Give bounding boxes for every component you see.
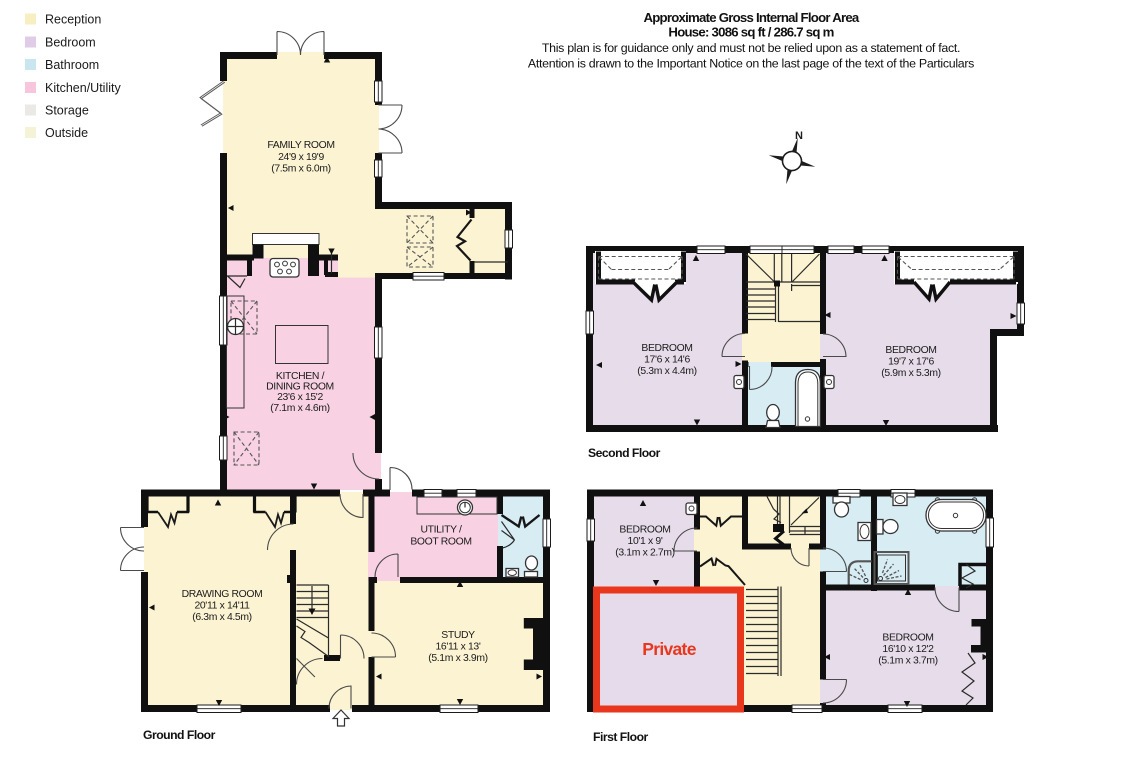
svg-text:(5.1m x 3.7m): (5.1m x 3.7m) [878, 656, 938, 667]
svg-text:FAMILY ROOM: FAMILY ROOM [267, 140, 334, 151]
svg-text:Ground Floor: Ground Floor [143, 728, 216, 742]
svg-text:DRAWING ROOM: DRAWING ROOM [182, 589, 263, 600]
svg-text:Private: Private [642, 639, 696, 659]
svg-text:House: 3086 sq ft / 286.7 sq m: House: 3086 sq ft / 286.7 sq m [668, 25, 833, 40]
svg-text:KITCHEN /: KITCHEN / [276, 371, 325, 382]
svg-text:N: N [795, 130, 803, 142]
svg-text:BOOT ROOM: BOOT ROOM [410, 537, 471, 548]
svg-text:(6.3m x 4.5m): (6.3m x 4.5m) [192, 612, 252, 623]
svg-text:23'6 x 15'2: 23'6 x 15'2 [277, 392, 323, 403]
svg-text:20'11 x 14'11: 20'11 x 14'11 [194, 601, 250, 612]
svg-text:Bedroom: Bedroom [45, 36, 96, 50]
svg-text:Approximate Gross Internal Flo: Approximate Gross Internal Floor Area [643, 10, 859, 25]
svg-text:Reception: Reception [45, 13, 101, 27]
svg-text:UTILITY /: UTILITY / [420, 525, 462, 536]
svg-text:DINING ROOM: DINING ROOM [266, 382, 334, 393]
svg-text:Kitchen/Utility: Kitchen/Utility [45, 81, 121, 95]
svg-text:(5.3m x 4.4m): (5.3m x 4.4m) [637, 366, 697, 377]
svg-text:17'6 x 14'6: 17'6 x 14'6 [644, 355, 690, 366]
svg-text:This plan is for guidance only: This plan is for guidance only and must … [542, 41, 960, 55]
svg-text:Attention is drawn to the Impo: Attention is drawn to the Important Noti… [528, 57, 974, 71]
svg-text:BEDROOM: BEDROOM [885, 345, 936, 356]
svg-text:BEDROOM: BEDROOM [619, 525, 670, 536]
svg-text:First Floor: First Floor [593, 730, 649, 744]
svg-text:Storage: Storage [45, 104, 89, 118]
svg-text:Outside: Outside [45, 126, 88, 140]
svg-text:10'1 x 9': 10'1 x 9' [628, 536, 663, 547]
svg-text:Second Floor: Second Floor [588, 446, 661, 460]
svg-text:(3.1m x 2.7m): (3.1m x 2.7m) [615, 548, 675, 559]
svg-text:(5.1m x 3.9m): (5.1m x 3.9m) [428, 653, 488, 664]
svg-text:16'11 x 13': 16'11 x 13' [436, 642, 481, 653]
svg-text:16'10 x 12'2: 16'10 x 12'2 [882, 644, 934, 655]
svg-text:(7.1m x 4.6m): (7.1m x 4.6m) [270, 403, 330, 414]
svg-text:Bathroom: Bathroom [45, 58, 99, 72]
svg-text:STUDY: STUDY [441, 630, 475, 641]
svg-text:BEDROOM: BEDROOM [882, 633, 933, 644]
svg-text:19'7 x 17'6: 19'7 x 17'6 [888, 357, 934, 368]
svg-text:BEDROOM: BEDROOM [641, 343, 692, 354]
svg-text:24'9 x 19'9: 24'9 x 19'9 [278, 152, 324, 163]
svg-text:(5.9m x 5.3m): (5.9m x 5.3m) [881, 368, 941, 379]
svg-text:(7.5m x 6.0m): (7.5m x 6.0m) [271, 164, 331, 175]
